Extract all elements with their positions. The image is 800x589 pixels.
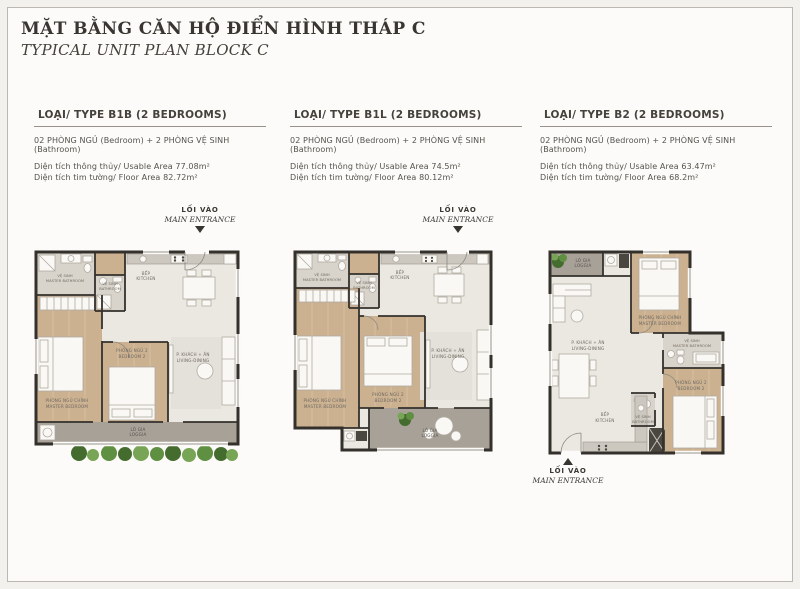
sink xyxy=(668,351,675,358)
sofa xyxy=(222,337,235,405)
svg-text:MASTER BEDROOM: MASTER BEDROOM xyxy=(304,404,347,409)
stove xyxy=(422,255,437,263)
svg-text:VỆ SINH: VỆ SINH xyxy=(314,272,330,277)
unit-spec-b1l: LOẠI/ TYPE B1L (2 BEDROOMS) 02 PHÒNG NGỦ… xyxy=(290,109,522,182)
svg-text:PHÒNG NGỦ CHÍNH: PHÒNG NGỦ CHÍNH xyxy=(638,315,681,320)
svg-text:PHÒNG NGỦ 2: PHÒNG NGỦ 2 xyxy=(675,380,707,385)
unit-spec-b1b: LOẠI/ TYPE B1B (2 BEDROOMS) 02 PHÒNG NGỦ… xyxy=(34,109,266,182)
kitchen-sink xyxy=(393,256,399,262)
washing-machine xyxy=(344,431,355,441)
svg-text:MASTER BATHROOM: MASTER BATHROOM xyxy=(46,279,84,283)
toilet xyxy=(83,256,92,262)
entrance-arrow-up-icon xyxy=(563,458,573,465)
svg-text:VỆ SINH: VỆ SINH xyxy=(684,338,700,343)
floor-plan-b2: LÔ GIALOGGIA PHÒNG NGỦ CHÍNHMASTER BEDRO… xyxy=(543,246,733,458)
svg-text:BEDROOM 2: BEDROOM 2 xyxy=(374,398,401,403)
svg-text:P. KHÁCH + ĂN: P. KHÁCH + ĂN xyxy=(176,352,209,357)
svg-text:VỆ SINH: VỆ SINH xyxy=(635,414,651,419)
entrance-callout-b1b: LỐI VÀO MAIN ENTRANCE xyxy=(140,206,260,233)
entrance-callout-b2: LỐI VÀO MAIN ENTRANCE xyxy=(508,458,628,485)
floor-plan-b1b: VỆ SINHMASTER BATHROOM VỆ SINHBATHROOM B… xyxy=(33,239,247,471)
unit-floor-area: Diện tích tim tường/ Floor Area 82.72m² xyxy=(34,173,266,182)
svg-text:LOGGIA: LOGGIA xyxy=(130,432,147,437)
entrance-arrow-down-icon xyxy=(195,226,205,233)
closet xyxy=(95,252,125,275)
dining-table xyxy=(434,274,464,296)
unit-floor-area: Diện tích tim tường/ Floor Area 80.12m² xyxy=(290,173,522,182)
svg-text:BATHROOM: BATHROOM xyxy=(99,287,121,291)
rug xyxy=(171,337,221,409)
unit-type-heading: LOẠI/ TYPE B2 (2 BEDROOMS) xyxy=(540,109,772,127)
svg-text:VỆ SINH: VỆ SINH xyxy=(356,280,372,285)
unit-spec-b2: LOẠI/ TYPE B2 (2 BEDROOMS) 02 PHÒNG NGỦ … xyxy=(540,109,772,182)
page-subtitle: TYPICAL UNIT PLAN BLOCK C xyxy=(21,41,269,59)
tv-console xyxy=(169,345,173,393)
entrance-label-en: MAIN ENTRANCE xyxy=(140,215,260,224)
svg-text:BATHROOM: BATHROOM xyxy=(353,286,375,290)
svg-text:BẾP: BẾP xyxy=(601,411,610,417)
tv-console xyxy=(426,340,430,388)
toilet xyxy=(338,255,346,260)
washing-machine xyxy=(40,425,55,440)
svg-text:KITCHEN: KITCHEN xyxy=(390,275,409,280)
page-title: MẶT BẰNG CĂN HỘ ĐIỂN HÌNH THÁP C xyxy=(21,19,426,39)
svg-text:MASTER BEDROOM: MASTER BEDROOM xyxy=(46,404,89,409)
svg-text:LIVING-DINING: LIVING-DINING xyxy=(432,354,465,359)
entrance-label-vi: LỐI VÀO xyxy=(508,467,628,475)
entrance-label-vi: LỐI VÀO xyxy=(140,206,260,214)
svg-text:P. KHÁCH + ĂN: P. KHÁCH + ĂN xyxy=(431,348,464,353)
svg-text:VỆ SINH: VỆ SINH xyxy=(57,273,73,278)
svg-text:PHÒNG NGỦ 2: PHÒNG NGỦ 2 xyxy=(116,348,148,353)
kitchen-sink xyxy=(638,405,644,411)
sofa xyxy=(477,330,490,400)
water-heater xyxy=(356,431,367,441)
wardrobe xyxy=(40,297,95,310)
unit-floor-area: Diện tích tim tường/ Floor Area 68.2m² xyxy=(540,173,772,182)
svg-text:BEDROOM 2: BEDROOM 2 xyxy=(118,354,145,359)
unit-usable-area: Diện tích thông thủy/ Usable Area 63.47m… xyxy=(540,162,772,171)
unit-usable-area: Diện tích thông thủy/ Usable Area 77.08m… xyxy=(34,162,266,171)
dining-table xyxy=(559,354,589,398)
entrance-label-vi: LỐI VÀO xyxy=(398,206,518,214)
svg-text:PHÒNG NGỦ CHÍNH: PHÒNG NGỦ CHÍNH xyxy=(45,398,88,403)
svg-text:PHÒNG NGỦ CHÍNH: PHÒNG NGỦ CHÍNH xyxy=(303,398,346,403)
kitchen-counter-side xyxy=(635,396,647,442)
svg-text:MASTER BATHROOM: MASTER BATHROOM xyxy=(673,344,711,348)
entrance-callout-b1l: LỐI VÀO MAIN ENTRANCE xyxy=(398,206,518,233)
fridge xyxy=(224,254,236,264)
floor-plan-b1l: VỆ SINHMASTER BATHROOM VỆ SINHBATHROOM B… xyxy=(292,240,494,456)
svg-text:LOGGIA: LOGGIA xyxy=(422,433,439,438)
unit-usable-area: Diện tích thông thủy/ Usable Area 74.5m² xyxy=(290,162,522,171)
closet xyxy=(349,252,379,274)
unit-type-heading: LOẠI/ TYPE B1L (2 BEDROOMS) xyxy=(290,109,522,127)
floor-plan-sheet: MẶT BẰNG CĂN HỘ ĐIỂN HÌNH THÁP C TYPICAL… xyxy=(0,0,800,589)
entrance-arrow-down-icon xyxy=(453,226,463,233)
dining-table xyxy=(183,277,215,299)
kitchen-sink xyxy=(140,256,146,262)
fridge xyxy=(477,254,488,264)
svg-text:LIVING-DINING: LIVING-DINING xyxy=(177,358,210,363)
unit-rooms-line: 02 PHÒNG NGỦ (Bedroom) + 2 PHÒNG VỆ SINH… xyxy=(290,136,522,154)
svg-text:MASTER BEDROOM: MASTER BEDROOM xyxy=(639,321,682,326)
appliance xyxy=(619,254,629,268)
svg-text:PHÒNG NGỦ 2: PHÒNG NGỦ 2 xyxy=(372,392,404,397)
svg-text:P. KHÁCH + ĂN: P. KHÁCH + ĂN xyxy=(571,340,604,345)
unit-type-heading: LOẠI/ TYPE B1B (2 BEDROOMS) xyxy=(34,109,266,127)
planting xyxy=(71,445,238,462)
coffee-table xyxy=(197,363,213,379)
entrance-label-en: MAIN ENTRANCE xyxy=(398,215,518,224)
coffee-table xyxy=(571,310,583,322)
entrance-label-en: MAIN ENTRANCE xyxy=(508,476,628,485)
washing-machine xyxy=(605,254,617,266)
toilet xyxy=(677,350,684,355)
svg-text:BEDROOM 2: BEDROOM 2 xyxy=(677,386,704,391)
svg-text:MASTER BATHROOM: MASTER BATHROOM xyxy=(303,278,341,282)
svg-text:BATHROOM: BATHROOM xyxy=(632,420,654,424)
unit-rooms-line: 02 PHÒNG NGỦ (Bedroom) + 2 PHÒNG VỆ SINH… xyxy=(34,136,266,154)
svg-text:LIVING-DINING: LIVING-DINING xyxy=(572,346,605,351)
svg-text:KITCHEN: KITCHEN xyxy=(595,418,614,423)
svg-text:VỆ SINH: VỆ SINH xyxy=(102,281,118,286)
unit-rooms-line: 02 PHÒNG NGỦ (Bedroom) + 2 PHÒNG VỆ SINH… xyxy=(540,136,772,154)
svg-text:KITCHEN: KITCHEN xyxy=(136,276,155,281)
svg-text:LOGGIA: LOGGIA xyxy=(575,263,592,268)
kitchen-counter xyxy=(583,442,647,452)
